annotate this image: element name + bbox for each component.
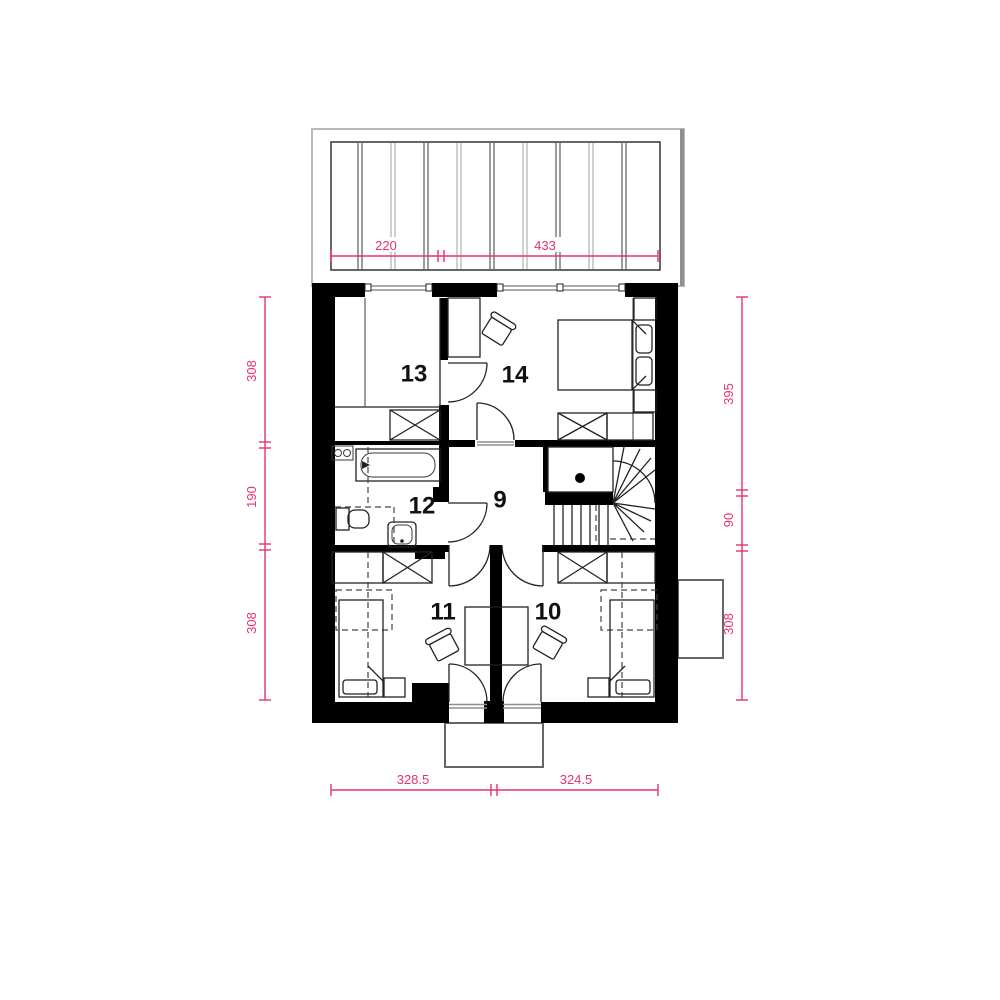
chair-10 [531,625,568,661]
furniture-room-13 [390,410,440,440]
door-room14 [477,403,514,440]
chair-14 [480,311,517,347]
room-label-11: 11 [430,599,455,626]
double-bed-14 [558,320,652,390]
furniture-room-14 [448,298,656,440]
door-room11 [449,545,490,586]
roof-outline [312,129,684,286]
floor-plan-page: 9 10 11 12 13 14 220 433 328.5 324.5 [0,0,1000,1000]
dim-left-1: 308 [244,360,259,382]
wall-right [655,283,678,723]
room-label-9: 9 [493,487,506,514]
wardrobe-11 [383,552,432,583]
wall-13-14-stub [440,298,448,360]
wardrobe-10 [558,552,607,583]
nightstand-10 [588,678,609,697]
door-room10 [502,545,543,586]
door-balcony-right [503,664,541,702]
wall-bottom-seg1 [312,702,449,723]
nightstand-14a [634,298,656,320]
room-label-12: 12 [409,493,436,520]
dim-right-3: 308 [721,613,736,635]
wall-bottom-seg2 [541,702,678,723]
room-label-14: 14 [502,362,529,389]
dim-top-2: 433 [534,238,556,253]
dim-top-1: 220 [375,238,397,253]
wall-stair-west [543,447,548,492]
dim-left-2: 190 [244,486,259,508]
wall-left [312,283,335,723]
roof-deck [312,129,684,286]
bed-10 [610,600,654,697]
wall-int1-seg1 [449,440,475,447]
sink-unit [332,446,353,460]
nightstand-14b [634,390,656,412]
balcony [445,723,543,767]
stair-void-dot [575,473,585,483]
door-bathroom [448,503,487,542]
desk-14 [448,298,480,357]
wardrobe-13 [390,410,440,440]
dim-left-3: 308 [244,612,259,634]
chimney [678,580,723,658]
wall-bath-stub [433,487,449,502]
closet-10 [607,552,655,583]
closet-11 [332,552,383,583]
door-room13 [448,363,487,402]
dim-right-2: 90 [721,513,736,527]
wall-top-seg2 [432,283,497,297]
dimension-left: 308 190 308 [244,297,271,700]
stair-void [548,447,613,492]
stair-landing-edge [545,492,613,505]
wall-top-seg3 [625,283,678,297]
chair-11 [425,627,461,662]
door-balcony-left [449,664,487,702]
toilet [336,508,369,530]
wall-bottom-step [412,683,449,703]
dim-bottom-2: 324.5 [560,772,593,787]
stair-winders [613,447,655,541]
window-room13 [365,283,432,297]
floor-plan-drawing: 9 10 11 12 13 14 220 433 328.5 324.5 [0,0,1000,1000]
nightstand-11 [384,678,405,697]
stair-treads [554,505,608,545]
room-label-10: 10 [535,599,562,626]
wall-int2-seg1 [335,545,449,552]
wall-top-seg1 [312,283,365,297]
bed-11 [339,600,383,697]
wall-center-partition [490,545,502,723]
window-room14 [497,283,625,297]
washbasin [388,522,416,547]
bathtub [356,449,440,481]
dim-right-1: 395 [721,383,736,405]
wall-int2-seg2 [542,545,655,552]
wardrobe-14 [558,413,653,440]
wall-int1-thin [335,441,449,445]
bathtub-tap [362,461,370,469]
dimension-right: 395 90 308 [721,297,748,700]
dim-bottom-1: 328.5 [397,772,430,787]
interior-lines [335,298,633,440]
dimension-bottom: 328.5 324.5 [331,772,658,796]
wall-int1-seg2 [515,440,655,447]
room-label-13: 13 [401,361,428,388]
